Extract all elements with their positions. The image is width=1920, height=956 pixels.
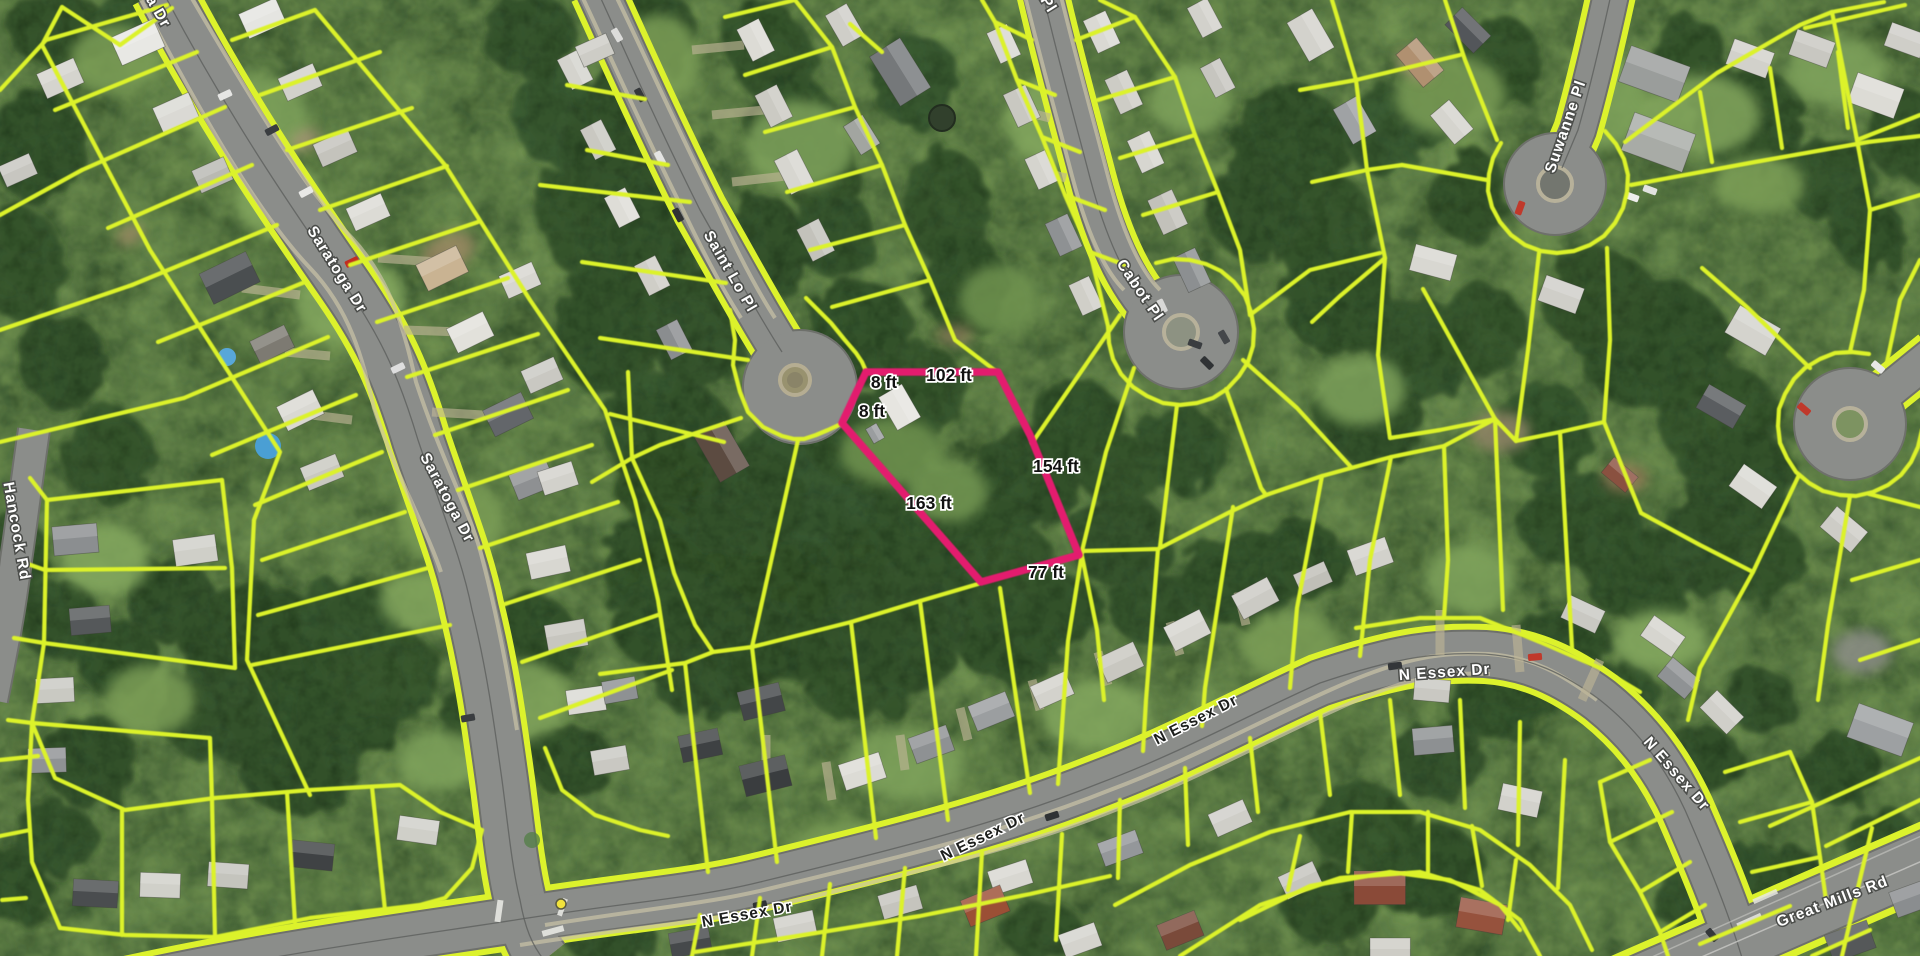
svg-text:8 ft: 8 ft <box>871 372 897 392</box>
svg-text:102 ft: 102 ft <box>926 365 972 385</box>
svg-text:154 ft: 154 ft <box>1033 456 1079 476</box>
svg-text:8 ft: 8 ft <box>859 401 885 421</box>
svg-text:163 ft: 163 ft <box>906 493 952 513</box>
svg-text:77 ft: 77 ft <box>1028 562 1064 582</box>
